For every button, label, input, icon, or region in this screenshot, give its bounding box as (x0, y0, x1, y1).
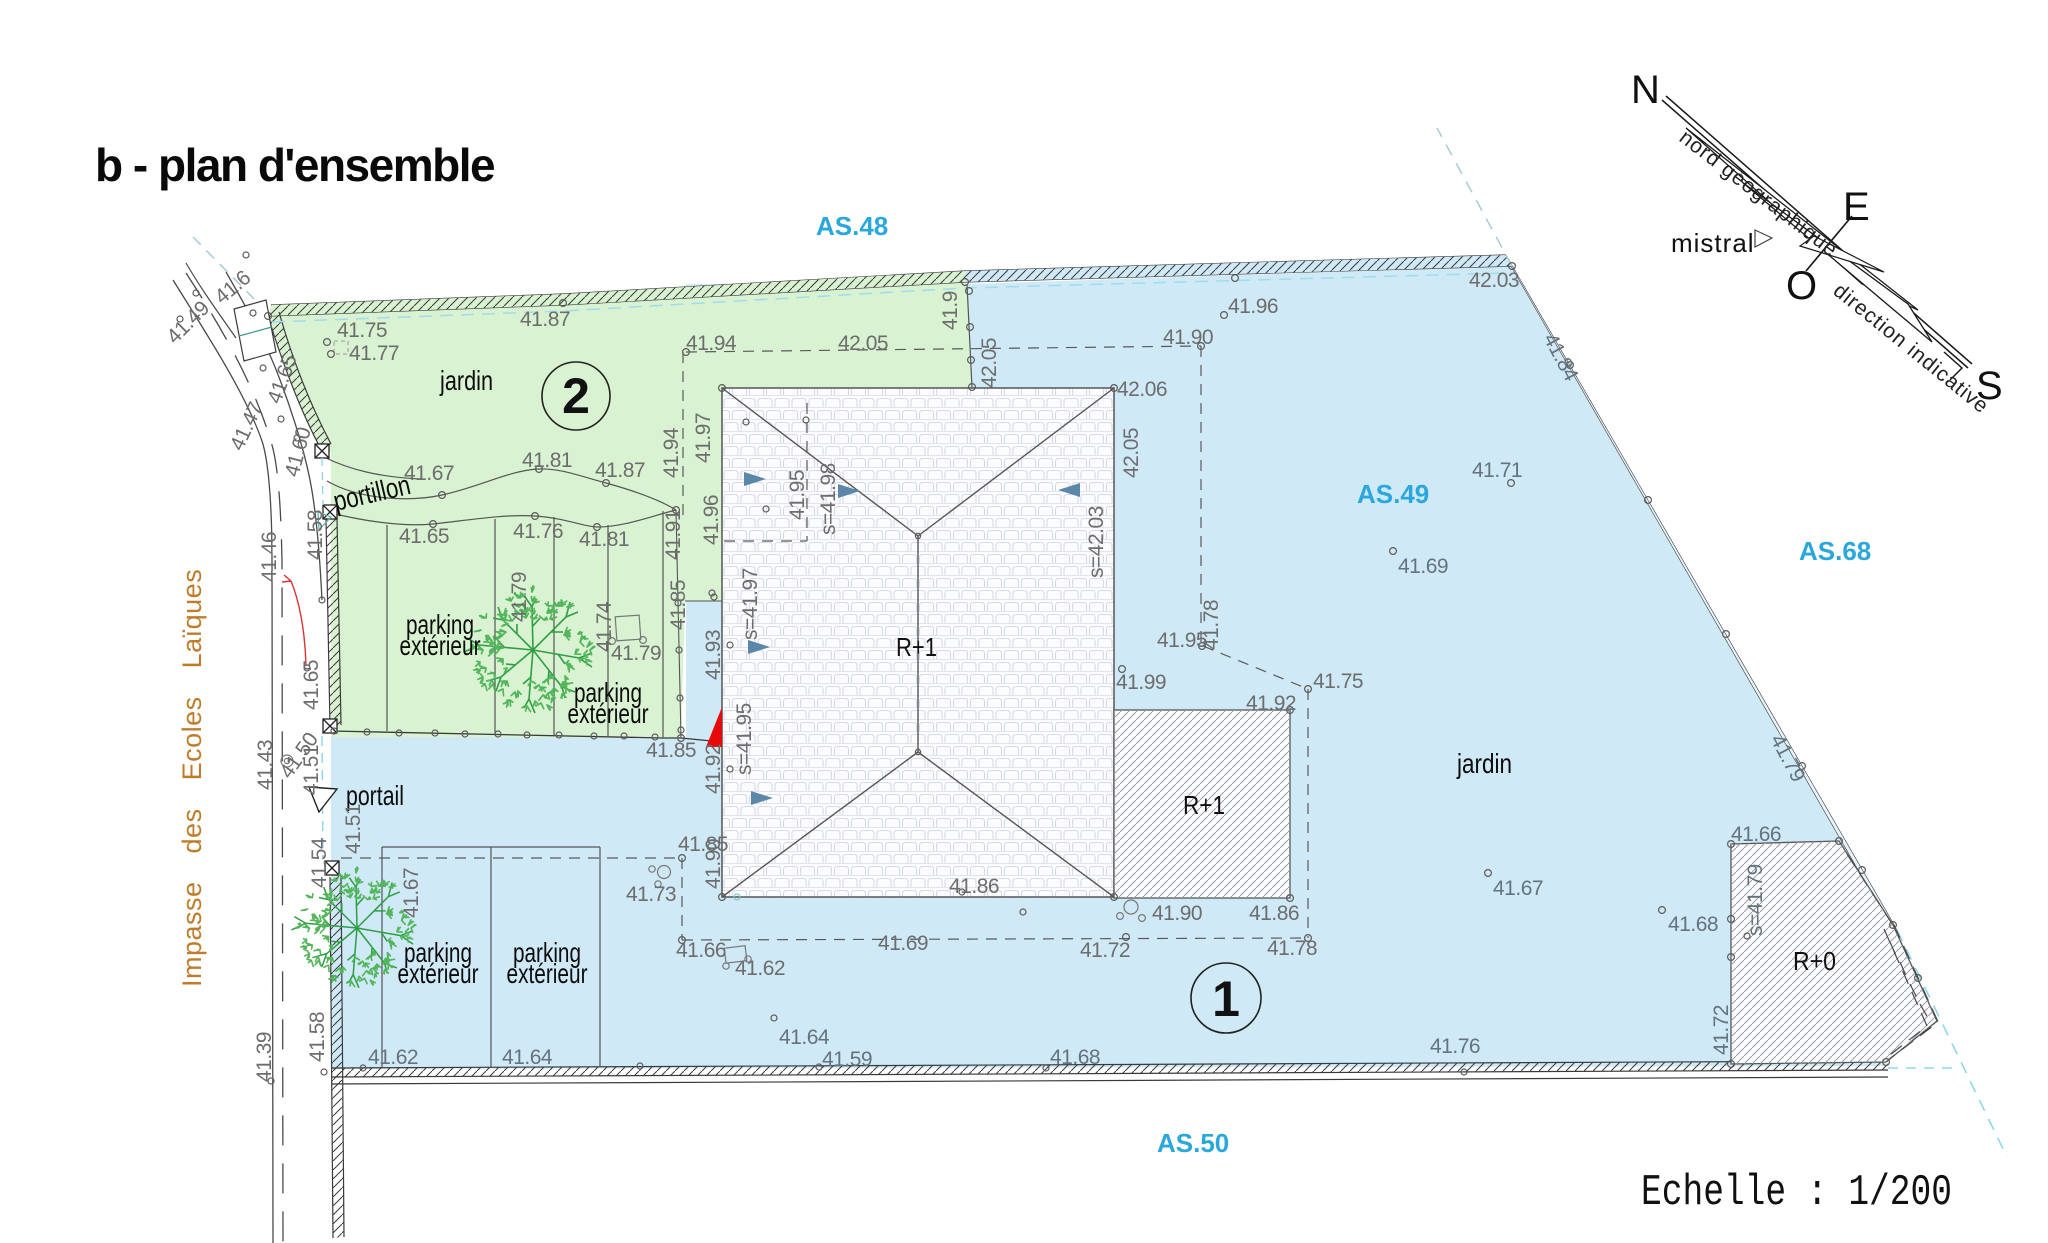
svg-text:extérieur: extérieur (507, 958, 588, 989)
svg-text:s=41.97: s=41.97 (739, 568, 762, 640)
svg-text:41.69: 41.69 (878, 932, 928, 955)
svg-text:41.90: 41.90 (702, 839, 725, 889)
svg-text:41.69: 41.69 (1398, 555, 1448, 578)
svg-text:41.90: 41.90 (1152, 902, 1202, 925)
svg-text:41.73: 41.73 (626, 883, 676, 906)
svg-text:41.86: 41.86 (1249, 902, 1299, 925)
svg-text:AS.48: AS.48 (816, 211, 888, 241)
svg-text:41.79: 41.79 (611, 642, 661, 665)
svg-text:41.85: 41.85 (667, 580, 690, 630)
svg-text:N: N (1631, 68, 1660, 112)
svg-text:41.94: 41.94 (686, 332, 737, 355)
svg-text:b - plan d'ensemble: b - plan d'ensemble (95, 139, 495, 191)
svg-text:mistral: mistral (1671, 228, 1755, 258)
svg-text:s=41.95: s=41.95 (733, 703, 756, 775)
svg-text:s=41.79: s=41.79 (1744, 864, 1767, 936)
svg-text:41.72: 41.72 (1710, 1005, 1733, 1055)
svg-text:41.72: 41.72 (1080, 939, 1130, 962)
svg-text:41.58: 41.58 (306, 1012, 329, 1062)
svg-text:41.81: 41.81 (522, 449, 572, 472)
svg-text:41.67: 41.67 (400, 868, 423, 918)
svg-text:jardin: jardin (1456, 748, 1512, 779)
svg-text:R+0: R+0 (1793, 946, 1836, 976)
svg-text:41.97: 41.97 (692, 413, 715, 463)
svg-text:extérieur: extérieur (398, 958, 479, 989)
svg-text:41.67: 41.67 (404, 462, 454, 485)
svg-text:41.39: 41.39 (253, 1032, 276, 1082)
svg-text:41.81: 41.81 (579, 528, 629, 551)
svg-text:41.65: 41.65 (300, 660, 323, 710)
svg-text:41.62: 41.62 (735, 957, 785, 980)
svg-text:41.96: 41.96 (1228, 295, 1278, 318)
svg-text:2: 2 (562, 368, 590, 424)
svg-text:41.87: 41.87 (595, 459, 645, 482)
svg-text:41.46: 41.46 (258, 532, 281, 582)
svg-text:41.90: 41.90 (1163, 326, 1213, 349)
svg-text:R+1: R+1 (1183, 790, 1225, 820)
svg-text:AS.50: AS.50 (1157, 1128, 1229, 1158)
svg-text:41.79: 41.79 (508, 572, 531, 622)
svg-text:s=41.98: s=41.98 (817, 463, 840, 535)
svg-text:41.78: 41.78 (1200, 600, 1223, 650)
svg-text:41.65: 41.65 (399, 525, 449, 548)
svg-text:41.75: 41.75 (1313, 670, 1363, 693)
svg-text:41.94: 41.94 (660, 427, 683, 478)
svg-text:41.99: 41.99 (1116, 671, 1166, 694)
svg-text:AS.49: AS.49 (1357, 479, 1429, 509)
svg-text:41.51: 41.51 (300, 745, 323, 795)
svg-text:42.06: 42.06 (1117, 378, 1167, 401)
svg-text:41.66: 41.66 (1731, 823, 1781, 846)
svg-text:extérieur: extérieur (568, 698, 649, 729)
svg-text:41.64: 41.64 (502, 1046, 553, 1069)
svg-text:41.51: 41.51 (342, 804, 365, 854)
svg-text:41.76: 41.76 (1430, 1035, 1480, 1058)
svg-text:42.05: 42.05 (1120, 428, 1143, 478)
svg-text:1: 1 (1212, 971, 1240, 1027)
svg-text:AS.68: AS.68 (1799, 536, 1871, 566)
svg-text:jardin: jardin (439, 365, 493, 396)
svg-text:41.62: 41.62 (368, 1046, 418, 1069)
svg-text:41.66: 41.66 (676, 939, 726, 962)
svg-text:41.76: 41.76 (513, 520, 563, 543)
svg-text:Echelle : 1/200: Echelle : 1/200 (1641, 1168, 1952, 1218)
svg-text:41.87: 41.87 (520, 308, 570, 331)
svg-text:42.05: 42.05 (838, 332, 888, 355)
svg-text:41.95: 41.95 (786, 470, 809, 520)
svg-text:41.92: 41.92 (702, 744, 725, 794)
svg-text:41.78: 41.78 (1267, 937, 1317, 960)
svg-text:41.59: 41.59 (822, 1048, 872, 1071)
svg-text:41.86: 41.86 (949, 875, 999, 898)
svg-text:41.92: 41.92 (1246, 692, 1296, 715)
svg-text:41.68: 41.68 (1668, 913, 1718, 936)
svg-text:R+1: R+1 (896, 632, 937, 662)
svg-text:41.58: 41.58 (304, 510, 327, 560)
svg-text:41.9: 41.9 (939, 291, 962, 330)
svg-text:41.68: 41.68 (1050, 1046, 1100, 1069)
svg-text:E: E (1843, 185, 1870, 229)
svg-text:41.64: 41.64 (779, 1026, 830, 1049)
svg-text:41.67: 41.67 (1493, 877, 1543, 900)
svg-text:41.71: 41.71 (1472, 459, 1522, 482)
svg-text:41.77: 41.77 (349, 342, 399, 365)
svg-text:41.96: 41.96 (700, 495, 723, 545)
svg-text:41.85: 41.85 (646, 739, 696, 762)
svg-text:s=42.03: s=42.03 (1085, 506, 1108, 578)
svg-text:extérieur: extérieur (400, 630, 481, 661)
svg-text:41.75: 41.75 (337, 319, 387, 342)
svg-text:42.05: 42.05 (978, 338, 1001, 388)
svg-text:41.91: 41.91 (662, 510, 685, 560)
svg-text:O: O (1786, 264, 1817, 308)
svg-text:41.54: 41.54 (308, 837, 331, 888)
svg-text:Impasse des Ecoles Laïques: Impasse des Ecoles Laïques (177, 569, 207, 987)
svg-text:41.43: 41.43 (254, 740, 277, 790)
svg-text:41.74: 41.74 (593, 601, 616, 652)
svg-text:42.03: 42.03 (1469, 269, 1519, 292)
svg-text:41.93: 41.93 (702, 630, 725, 680)
